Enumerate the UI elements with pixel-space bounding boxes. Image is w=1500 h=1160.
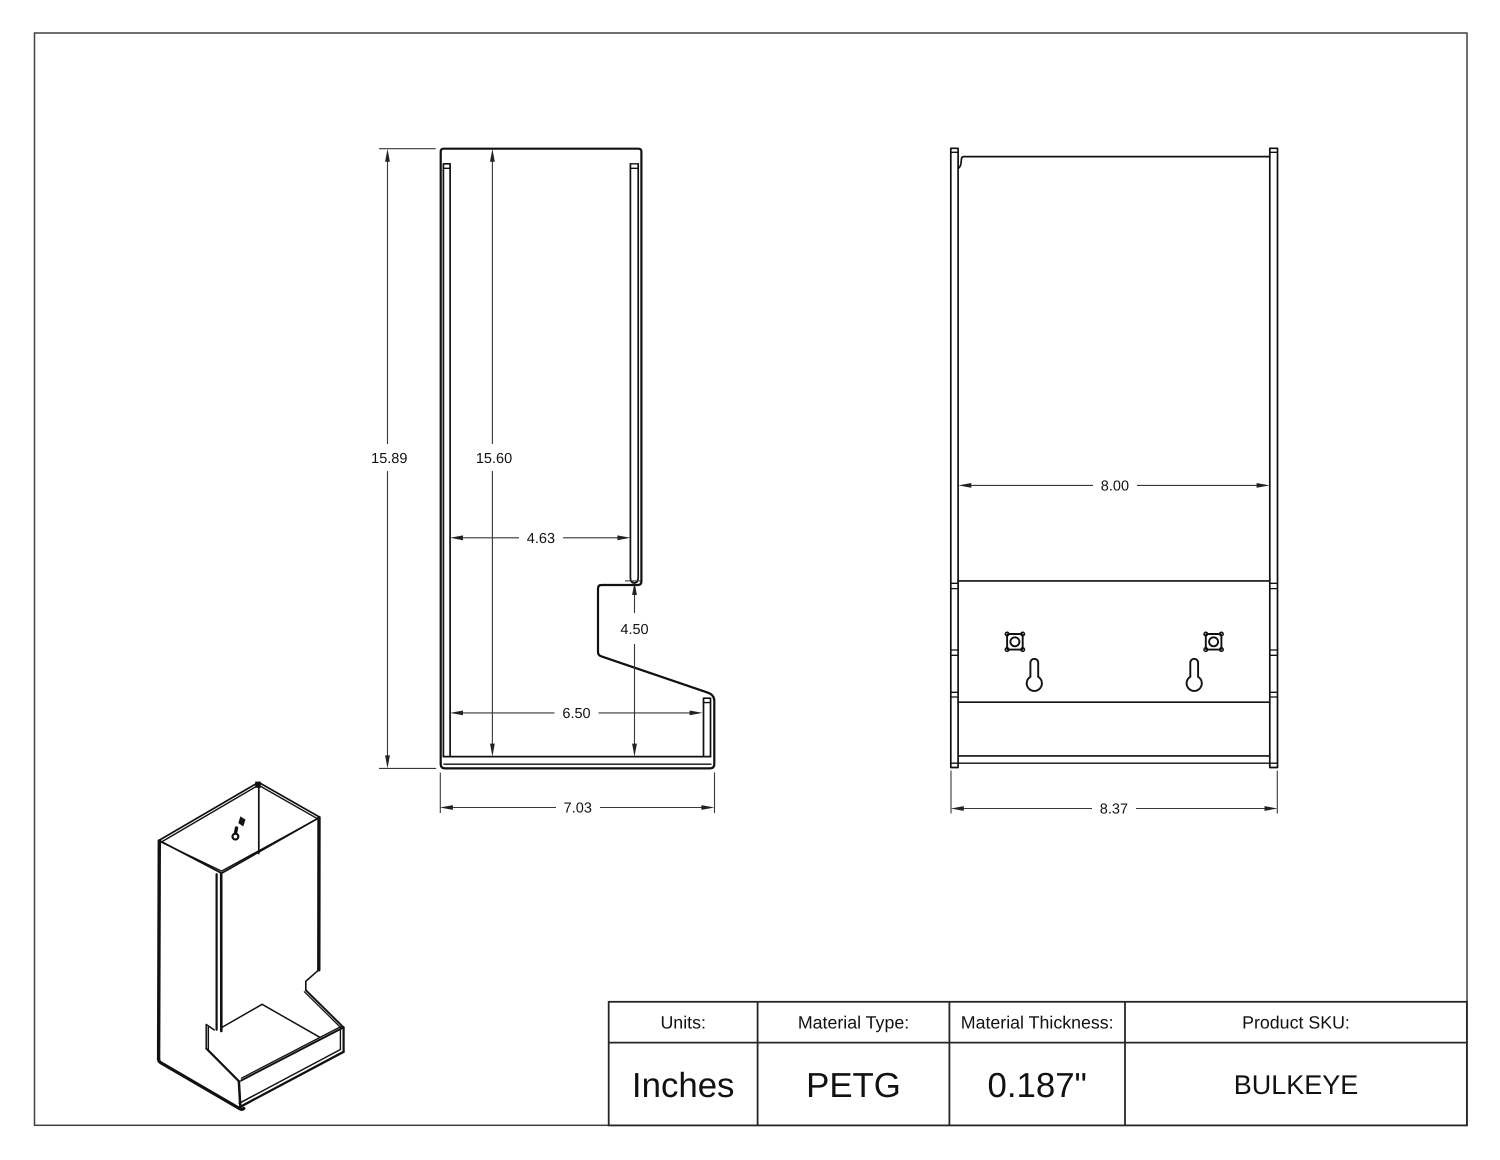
svg-text:4.63: 4.63	[527, 531, 555, 547]
svg-text:Inches: Inches	[632, 1066, 735, 1105]
svg-text:Product SKU:: Product SKU:	[1242, 1013, 1350, 1033]
svg-text:BULKEYE: BULKEYE	[1234, 1070, 1359, 1100]
svg-text:0.187": 0.187"	[987, 1066, 1086, 1105]
svg-text:8.00: 8.00	[1101, 479, 1129, 495]
svg-text:Units:: Units:	[660, 1013, 705, 1033]
svg-text:8.37: 8.37	[1100, 802, 1128, 818]
svg-text:PETG: PETG	[806, 1066, 901, 1105]
svg-text:15.60: 15.60	[476, 451, 512, 467]
svg-text:6.50: 6.50	[562, 706, 590, 722]
svg-text:Material Type:: Material Type:	[798, 1013, 909, 1033]
svg-text:7.03: 7.03	[564, 801, 592, 817]
svg-text:15.89: 15.89	[371, 451, 407, 467]
svg-text:Material Thickness:: Material Thickness:	[961, 1013, 1114, 1033]
svg-text:4.50: 4.50	[620, 622, 648, 638]
